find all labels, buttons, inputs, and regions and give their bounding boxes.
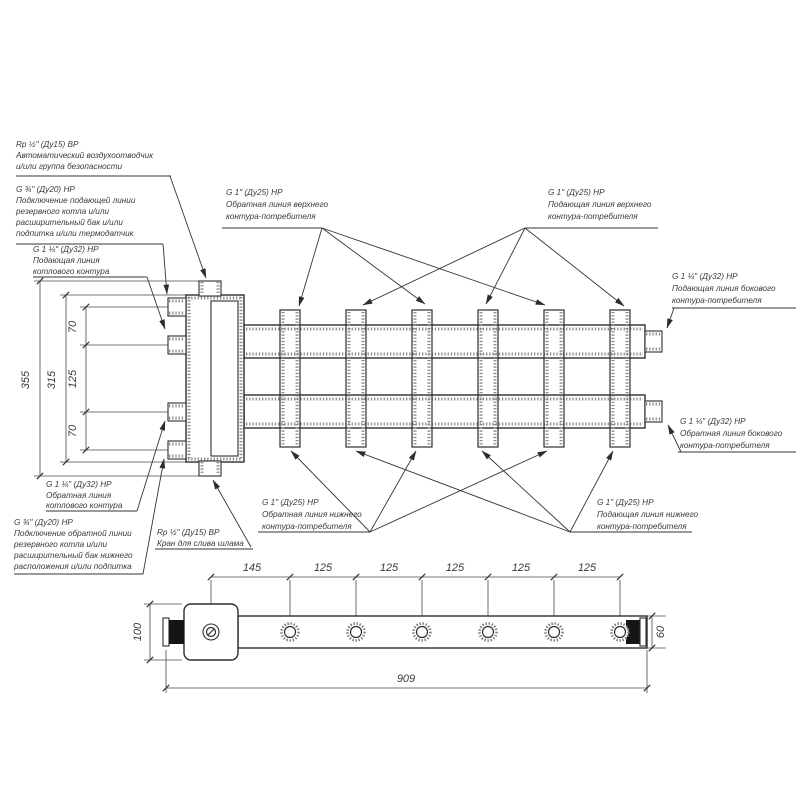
callout-line: G 1 ¼" (Ду32) НР	[46, 480, 112, 489]
left-stub-3	[168, 403, 186, 421]
callout-side-supply: G 1 ¼" (Ду32) НР Подающая линия бокового…	[672, 272, 776, 305]
callout-line: Обратная линия	[46, 491, 112, 500]
left-stub-2	[168, 336, 186, 354]
callout-line: Подающая линия бокового	[672, 284, 776, 293]
callout-line: G ¾" (Ду20) НР	[14, 518, 73, 527]
callout-line: Rp ½" (Ду15) ВР	[157, 528, 220, 537]
callout-line: G 1 ¼" (Ду32) НР	[33, 245, 99, 254]
dim-70-top: 70	[67, 320, 79, 333]
callout-line: Обратная линия нижнего	[262, 510, 362, 519]
dim-355: 355	[20, 370, 32, 389]
left-stub-1	[168, 298, 186, 316]
drawing-canvas: 355 315 70 125 70	[0, 0, 800, 800]
callout-line: Подающая линия верхнего	[548, 200, 652, 209]
callout-line: G 1" (Ду25) НР	[262, 498, 319, 507]
main-view: 355 315 70 125 70	[13, 140, 796, 574]
callout-backup-return: G ¾" (Ду20) НР Подключение обратной лини…	[13, 518, 133, 571]
callout-line: Подключение обратной линии	[14, 529, 132, 538]
callout-air-vent: Rp ½" (Ду15) ВР Автоматический воздухоот…	[15, 140, 154, 171]
dim-125: 125	[380, 562, 399, 574]
upper-pipe	[244, 325, 645, 358]
callout-upper-return: G 1" (Ду25) НР Обратная линия верхнего к…	[226, 188, 329, 221]
callout-line: контура-потребителя	[680, 441, 770, 450]
callout-line: Подключение подающей линии	[16, 196, 136, 205]
callout-line: Кран для слива шлама	[157, 539, 244, 548]
drain-stub	[199, 461, 221, 476]
pitch-dimension: 145 125 125 125 125 125	[208, 562, 623, 622]
callout-lower-supply: G 1" (Ду25) НР Подающая линия нижнего ко…	[597, 498, 699, 531]
end-stub-upper	[645, 331, 662, 352]
callout-line: Обратная линия бокового	[680, 429, 783, 438]
left-end-cap	[169, 620, 184, 644]
callout-line: G 1 ¼" (Ду32) НР	[672, 272, 738, 281]
left-stub-4	[168, 441, 186, 459]
callout-boiler-return: G 1 ¼" (Ду32) НР Обратная линия котловог…	[46, 480, 123, 510]
callout-line: и/или группа безопасности	[16, 162, 123, 171]
callout-backup-supply: G ¾" (Ду20) НР Подключение подающей лини…	[15, 185, 136, 238]
callout-line: G ¾" (Ду20) НР	[16, 185, 75, 194]
callout-line: G 1" (Ду25) НР	[597, 498, 654, 507]
dim-125: 125	[512, 562, 531, 574]
callout-line: Rp ½" (Ду15) ВР	[16, 140, 79, 149]
dim-125-left: 125	[67, 369, 79, 388]
bottom-view: 145 125 125 125 125 125	[132, 562, 667, 693]
dim-60: 60	[655, 625, 667, 638]
manifold-technical-drawing: 355 315 70 125 70	[0, 0, 800, 800]
callout-line: G 1" (Ду25) НР	[548, 188, 605, 197]
callout-line: подпитка и/или термодатчик	[16, 229, 135, 238]
callout-line: Подающая линия нижнего	[597, 510, 699, 519]
callout-drain: Rp ½" (Ду15) ВР Кран для слива шлама	[157, 528, 244, 548]
dim-125: 125	[578, 562, 597, 574]
callout-line: контура-потребителя	[262, 522, 352, 531]
left-dimension-ticks	[37, 278, 89, 479]
dim-145: 145	[243, 562, 262, 574]
header-block	[186, 295, 244, 462]
bottom-view-bar	[163, 604, 647, 660]
callout-line: котлового контура	[33, 267, 110, 276]
callout-side-return: G 1 ¼" (Ду32) НР Обратная линия бокового…	[680, 417, 783, 450]
callout-line: контура-потребителя	[597, 522, 687, 531]
dim-125: 125	[446, 562, 465, 574]
callout-line: расположения и/или подпитка	[13, 562, 132, 571]
left-end-plate	[163, 618, 169, 646]
callout-line: контура-потребителя	[672, 296, 762, 305]
callout-line: резервного котла и/или	[13, 540, 107, 549]
right-height-dimension: 60	[647, 613, 667, 651]
callout-upper-supply: G 1" (Ду25) НР Подающая линия верхнего к…	[548, 188, 652, 221]
callout-line: резервного котла и/или	[15, 207, 109, 216]
dim-125: 125	[314, 562, 333, 574]
callout-line: расширительный бак и/или	[15, 218, 123, 227]
lower-pipe	[244, 395, 645, 428]
callout-line: контура-потребителя	[226, 212, 316, 221]
callout-line: котлового контура	[46, 501, 123, 510]
callout-lower-return: G 1" (Ду25) НР Обратная линия нижнего ко…	[262, 498, 362, 531]
callout-line: Автоматический воздухоотводчик	[15, 151, 154, 160]
right-end-plate	[640, 618, 646, 646]
callout-line: контура-потребителя	[548, 212, 638, 221]
air-vent-stub	[199, 281, 221, 296]
dim-70-bottom: 70	[67, 424, 79, 437]
callout-line: расширительный бак нижнего	[13, 551, 133, 560]
callout-line: G 1 ¼" (Ду32) НР	[680, 417, 746, 426]
dim-315: 315	[46, 370, 58, 389]
callout-line: Обратная линия верхнего	[226, 200, 329, 209]
end-stub-lower	[645, 401, 662, 422]
callout-line: G 1" (Ду25) НР	[226, 188, 283, 197]
dim-100: 100	[132, 622, 144, 641]
callout-boiler-supply: G 1 ¼" (Ду32) НР Подающая линия котловог…	[33, 245, 110, 276]
dim-909: 909	[397, 673, 415, 685]
callout-line: Подающая линия	[33, 256, 100, 265]
header-inner-plate	[211, 301, 238, 456]
